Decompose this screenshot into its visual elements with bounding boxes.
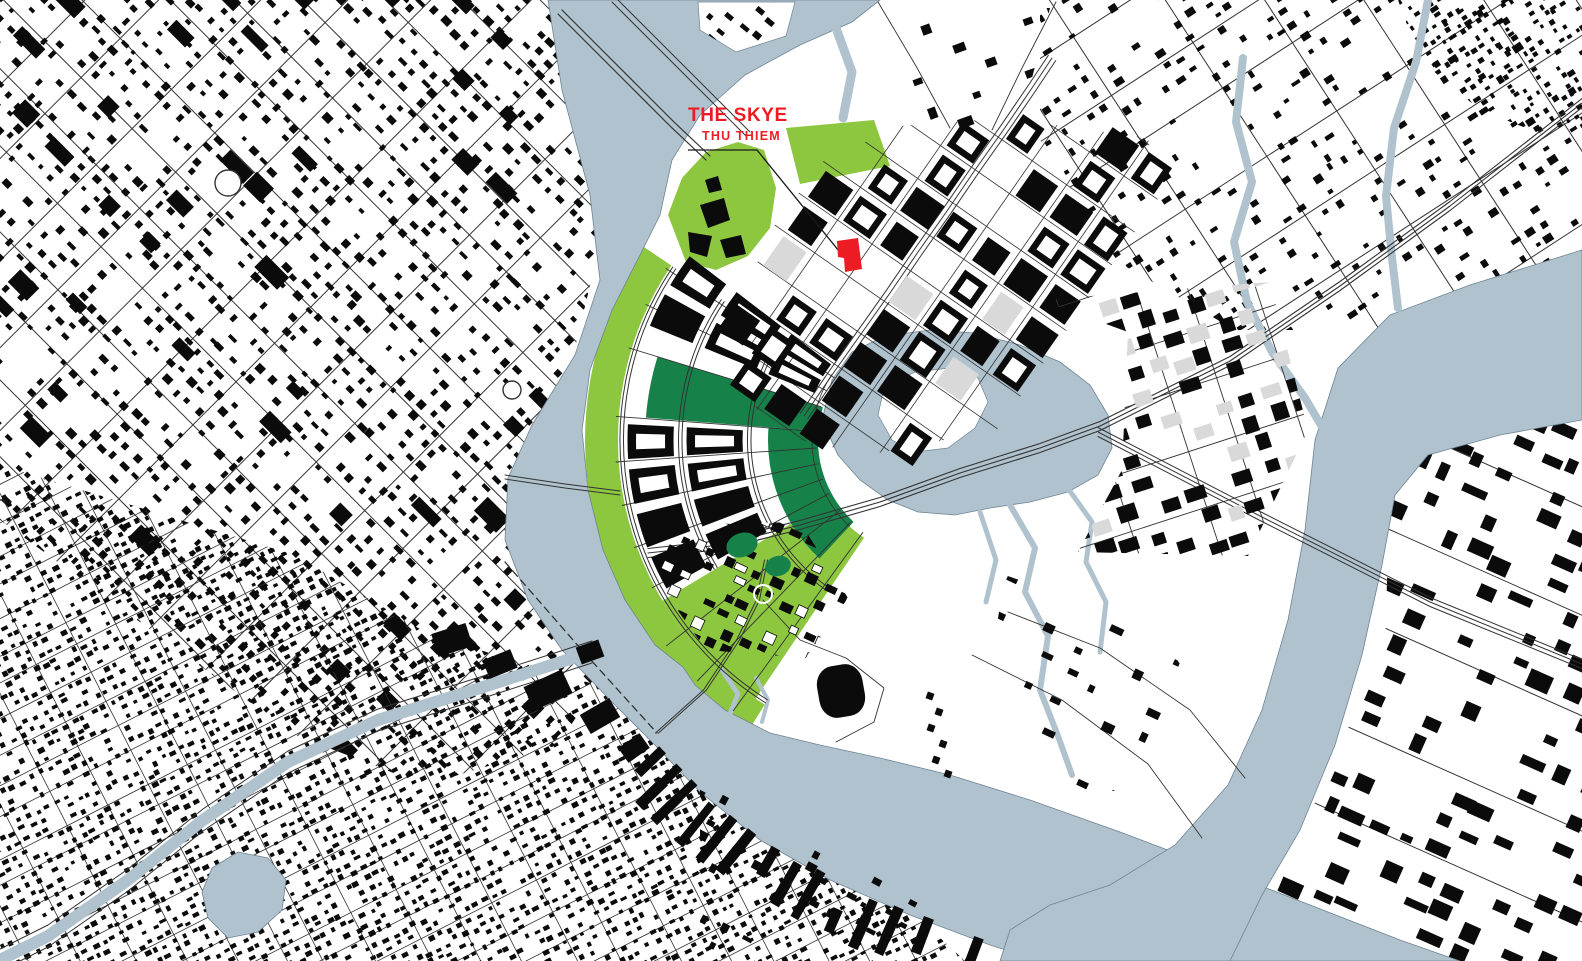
roundabout [503, 381, 521, 399]
site-title: THE SKYE [688, 106, 788, 126]
map-canvas [0, 0, 1582, 961]
roundabout [215, 170, 241, 196]
site-label: THE SKYE THU THIEM [688, 106, 788, 143]
site-subtitle: THU THIEM [702, 130, 788, 143]
map-viewport: THE SKYE THU THIEM [0, 0, 1582, 961]
